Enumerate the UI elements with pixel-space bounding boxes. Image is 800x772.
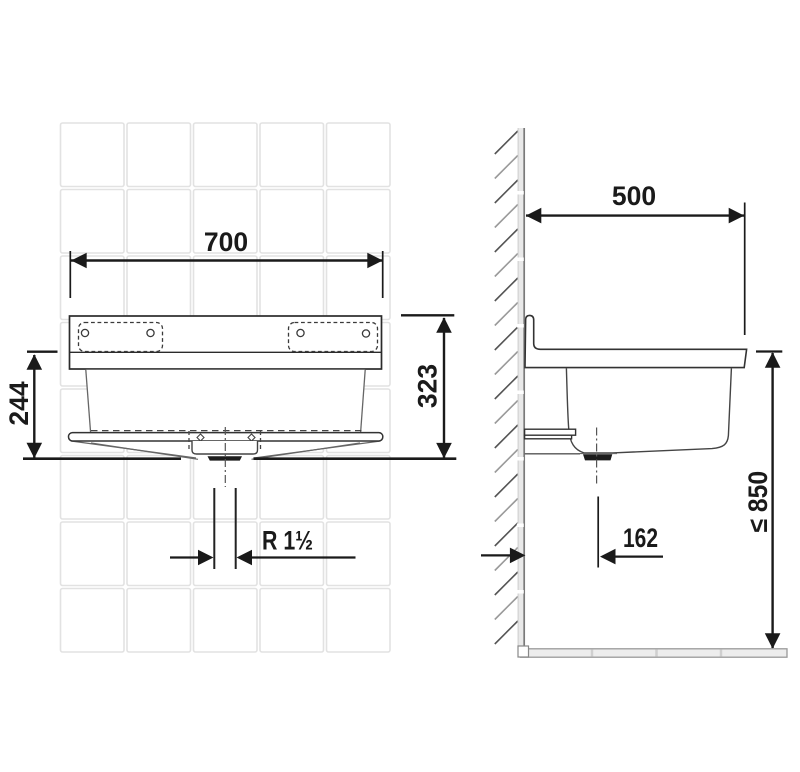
svg-text:500: 500 [612, 181, 656, 211]
svg-text:700: 700 [204, 227, 248, 257]
svg-text:323: 323 [413, 364, 443, 408]
svg-text:244: 244 [4, 381, 34, 425]
svg-text:162: 162 [623, 523, 658, 553]
svg-text:≤ 850: ≤ 850 [743, 471, 773, 533]
svg-text:R 1½: R 1½ [262, 526, 313, 556]
